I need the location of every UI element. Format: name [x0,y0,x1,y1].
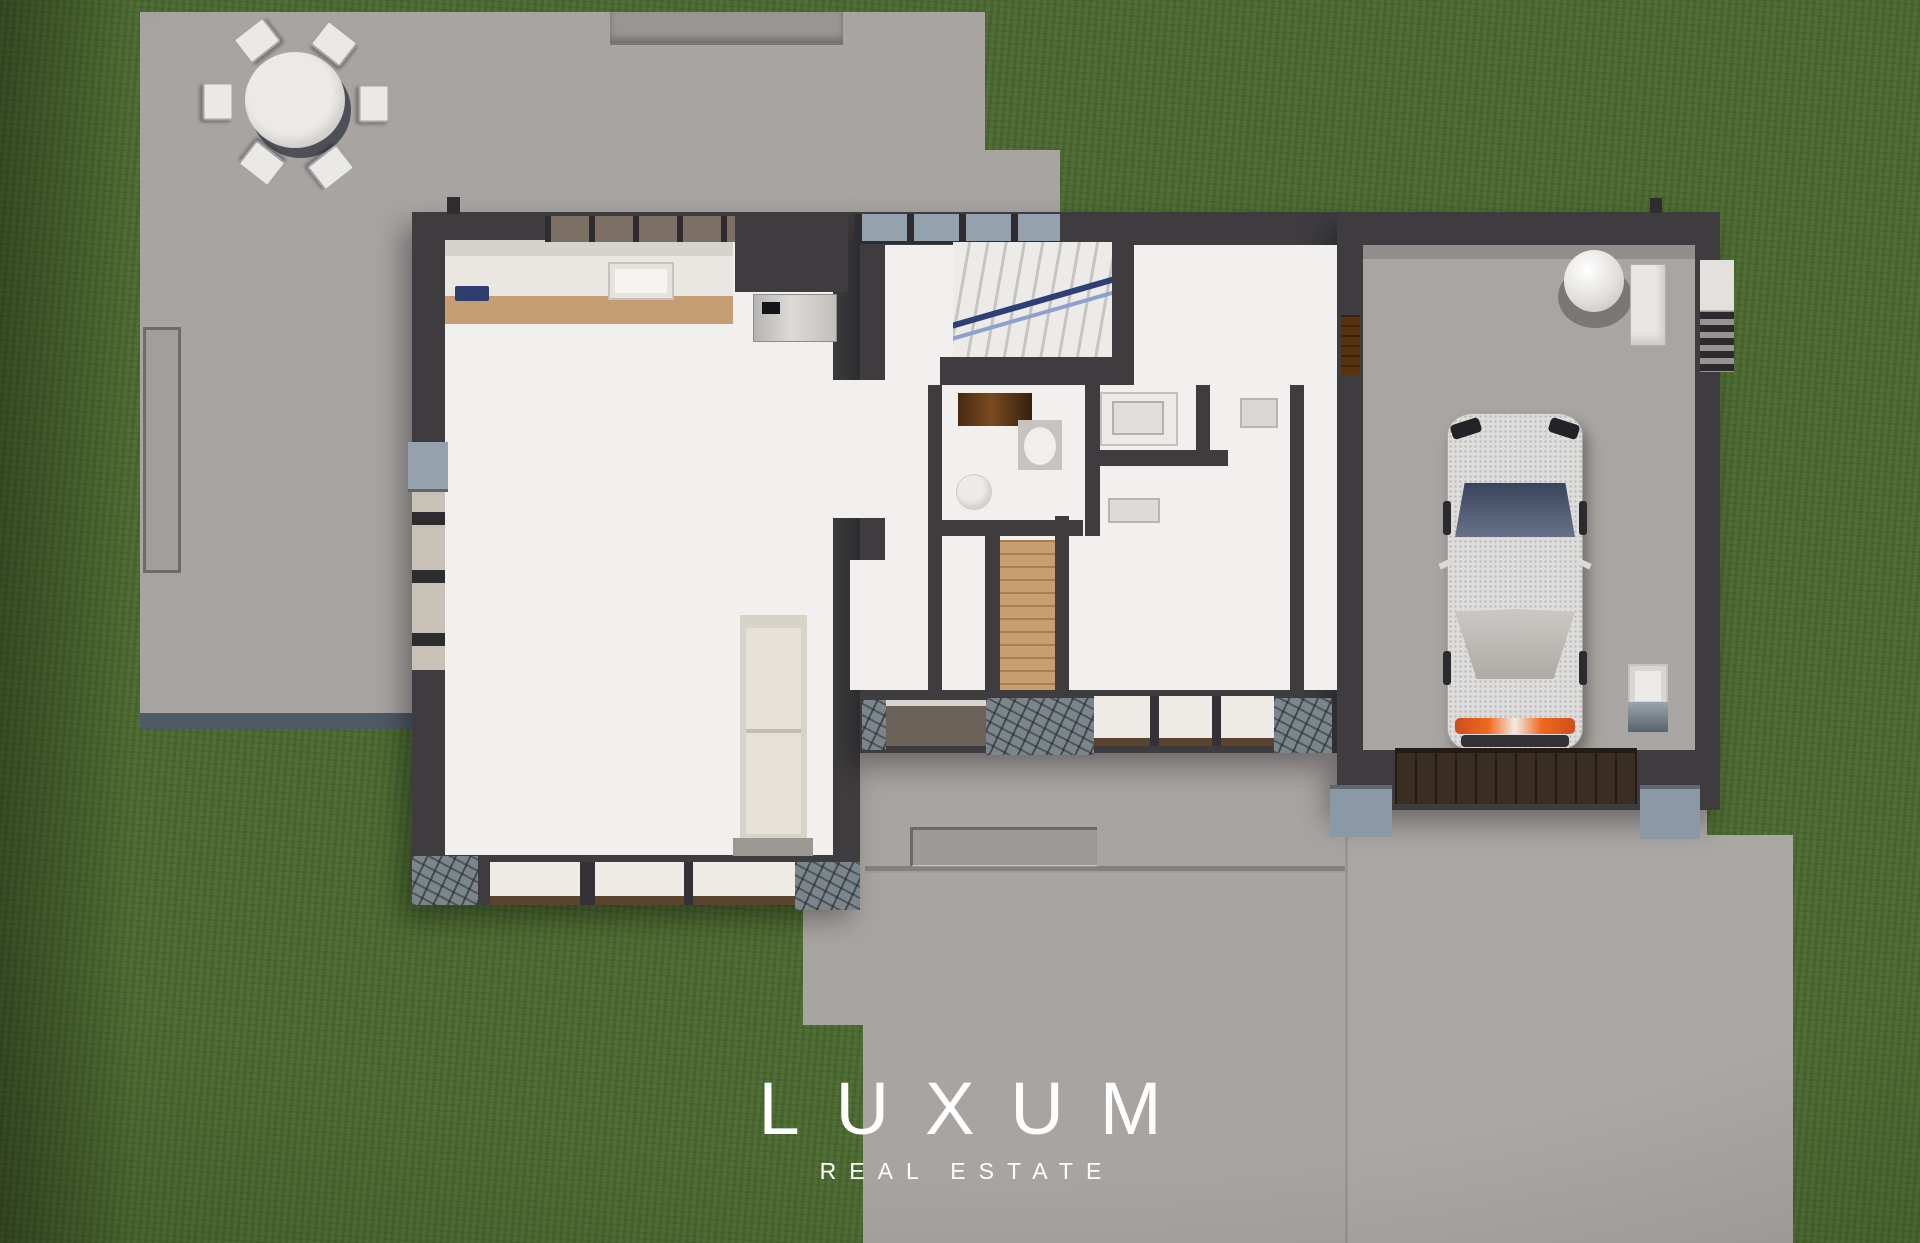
kitchen-partition-wall [735,212,848,292]
second-basin [1240,398,1278,428]
car-rear-window [1455,483,1575,537]
garage-entry-door [1341,315,1360,375]
patio-terrace-extension [985,150,1060,214]
staircase [953,242,1112,359]
stone-pier [1274,698,1332,753]
floor-plan-render: LUXUM REAL ESTATE [0,0,1920,1243]
kitchen-top-window-band [545,216,735,242]
living-south-window-band [490,862,795,905]
dining-table [245,52,345,148]
oven-display [762,302,780,314]
garage-utility-sink-base [1628,702,1668,732]
car-wheel [1443,651,1451,685]
window-mullion [412,633,445,646]
entry-walkway [803,753,1345,1025]
laundry-sink [1112,401,1164,435]
entry-step-recess [910,827,1097,867]
powder-basin [1024,427,1056,465]
closet-left-wall [985,536,1000,694]
car-front-bumper [1461,735,1569,747]
window-mullion [580,862,595,905]
car-wheel [1579,501,1587,535]
closet-right-wall [1055,516,1069,694]
doorway-living-to-hall [850,560,887,690]
kitchen-cooktop [455,286,489,301]
car [1447,413,1583,751]
stone-pier [412,856,478,905]
car-body [1447,413,1583,751]
patio-edge-curb [140,713,412,729]
roof-vent-stub [1650,198,1662,213]
closet-timber-floor [1000,540,1055,690]
stone-pier [795,862,860,910]
sliding-door-pier [408,442,448,492]
laundry-right-wall [1196,385,1210,457]
stone-wall-section [986,698,1094,755]
window-mullion [412,570,445,583]
car-wheel [1579,651,1587,685]
window-mullion [684,862,693,905]
patio-planter-recess [143,327,181,573]
bedroom-desk [1108,498,1160,523]
utility-cabinet [1630,264,1666,346]
garage-door-pier [1330,785,1392,837]
entry-walkway-lower [863,1020,1345,1243]
kitchen-sink [608,262,674,300]
wall-under-stairs [940,357,1134,385]
roof-vent-stub [447,197,460,214]
doorway-living-to-entry [833,380,885,518]
patio-step-notch [610,12,843,45]
fireplace-base [733,838,813,856]
south-window-white [1094,696,1274,746]
kitchen-counter [445,240,733,324]
driveway [1345,835,1793,1243]
stair-handrail-top [953,285,1112,343]
garage-door-threshold [1395,748,1637,804]
laundry-bottom-wall [1100,450,1228,466]
powder-room-right-wall [1085,385,1100,536]
south-window-dark [886,700,986,746]
water-heater [1564,250,1624,312]
entry-glass-door [855,214,1060,244]
garage-door-pier [1640,785,1700,839]
ac-condenser-unit [1700,260,1734,372]
stone-pier [862,700,886,750]
powder-room-left-wall [928,385,942,703]
patio-chair [359,85,390,123]
window-mullion [412,512,445,525]
patio-chair [203,83,234,121]
window-mullion [1150,696,1159,746]
bedroom-right-wall [1290,385,1304,695]
walkway-step-line [865,866,1345,873]
car-front-light-bar [1455,718,1575,734]
window-mullion [1212,696,1221,746]
fireplace-face [746,628,801,834]
car-wheel [1443,501,1451,535]
toilet [956,474,992,510]
